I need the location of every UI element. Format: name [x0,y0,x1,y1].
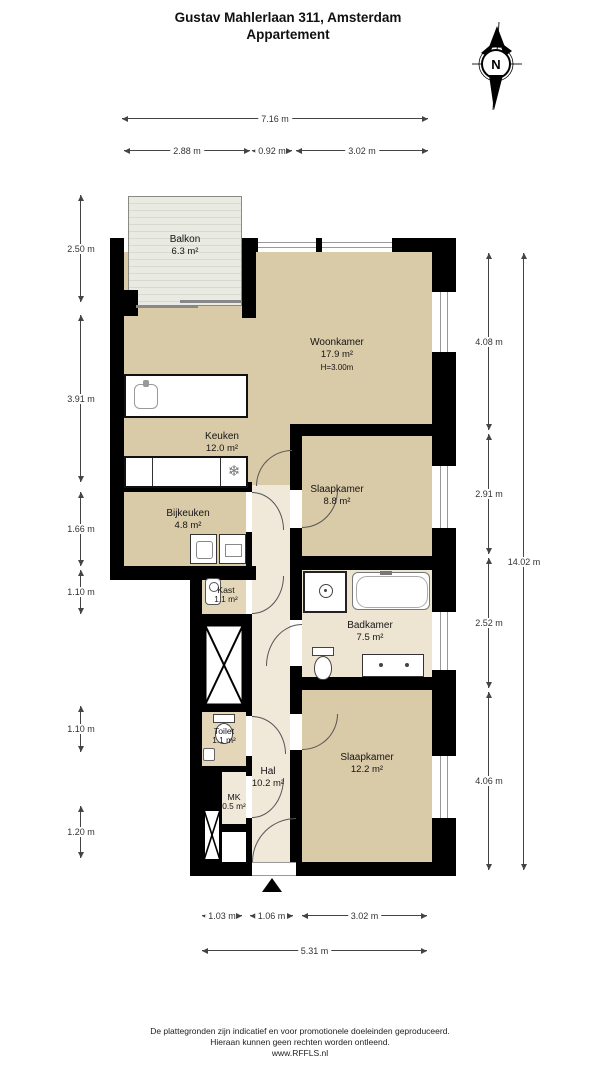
shower-dot [324,589,327,592]
window [432,292,456,352]
wall-bottom [190,862,252,876]
dim-top-seg: 2.88 m [124,150,250,151]
dim-bottom-total: 5.31 m [202,950,427,951]
sliding-door [136,305,198,308]
shaft-box [202,808,222,862]
dim-left: 1.10 m [80,570,81,614]
dim-left: 3.91 m [80,315,81,482]
entrance-threshold [252,862,296,876]
wall-right [432,528,456,612]
wall-bottom [296,862,456,876]
window [432,466,456,528]
room-label-balkon: Balkon 6.3 m² [135,234,235,257]
room-label-keuken: Keuken 12.0 m² [172,431,272,454]
wall-mk-bottom [222,824,252,832]
room-label-bijkeuken: Bijkeuken 4.8 m² [138,508,238,531]
dim-left: 2.50 m [80,195,81,302]
sliding-door [180,300,242,303]
window [322,238,392,252]
toilet-bowl [314,656,332,680]
washing-machine-door [196,541,213,559]
kitchen-sink [134,384,158,409]
freezer-icon: ❄ [221,456,247,488]
wall-kast-bottom [202,614,252,622]
room-label-mk: MK 0.5 m² [210,792,258,812]
disclaimer-line: Hieraan kunnen geen rechten worden ontle… [0,1037,600,1048]
wall-woonkamer-slaapkamer [290,424,432,436]
vanity [362,654,424,677]
north-compass-icon: N [464,20,528,112]
window [432,612,456,670]
disclaimer-line: De plattegronden zijn indicatief en voor… [0,1026,600,1037]
dim-right: 2.52 m [488,558,489,688]
room-label-woonkamer: Woonkamer 17.9 m² H=3.00m [277,337,397,373]
window [432,756,456,818]
wall-column-hal [246,566,252,574]
toilet-tank [312,647,334,656]
dim-left: 1.10 m [80,706,81,752]
wall-bijkeuken-bottom [110,566,256,580]
wall-balcony-side [242,238,256,318]
dim-right-total: 14.02 m [523,253,524,870]
disclaimer: De plattegronden zijn indicatief en voor… [0,1026,600,1059]
laundry-basket-inner [225,544,242,557]
entrance-arrow-icon [262,878,282,892]
dim-top-total: 7.16 m [122,118,428,119]
room-label-kast: Kast 1.1 m² [202,585,250,605]
dim-right: 4.06 m [488,692,489,870]
room-label-toilet: Toilet 1.1 m² [198,726,250,746]
dim-right: 2.91 m [488,434,489,554]
window [258,238,316,252]
floor-plan: Gustav Mahlerlaan 311, Amsterdam Apparte… [0,0,600,1066]
wall-bijkeuken-hal [246,532,252,566]
wall-left-lower [190,566,202,876]
wall-hal-east [290,528,302,620]
dim-right: 4.08 m [488,253,489,430]
wall-right [432,352,456,466]
room-label-slaapkamer-1: Slaapkamer 8.8 m² [287,484,387,507]
wall-column-hal [246,614,252,716]
wall-right [432,670,456,756]
website-url: www.RFFLS.nl [0,1048,600,1059]
dim-top-seg: 0.92 m [252,150,292,151]
room-label-slaapkamer-2: Slaapkamer 12.2 m² [317,752,417,775]
bathtub-inner [356,576,428,608]
wall-hal-east [290,666,302,714]
dim-bottom-seg: 1.06 m [250,915,293,916]
svg-text:N: N [491,57,500,72]
vanity-tap [405,663,409,667]
dim-bottom-seg: 3.02 m [302,915,427,916]
hand-basin [203,748,215,761]
dim-bottom-seg: 1.03 m [202,915,242,916]
wall-right [432,238,456,292]
counter-divider [152,458,153,486]
dim-left: 1.66 m [80,492,81,566]
wall-slaapkamer-badkamer [302,556,432,570]
bathtub-faucet [380,571,392,575]
room-label-badkamer: Badkamer 7.5 m² [315,620,425,643]
dim-top-seg: 3.02 m [296,150,428,151]
dim-left: 1.20 m [80,806,81,858]
room-label-hal: Hal 10.2 m² [218,766,318,789]
kitchen-tap [143,380,149,387]
toilet-tank [213,714,235,723]
shaft-box [202,622,246,708]
vanity-tap [379,663,383,667]
wall-corner [110,290,138,316]
